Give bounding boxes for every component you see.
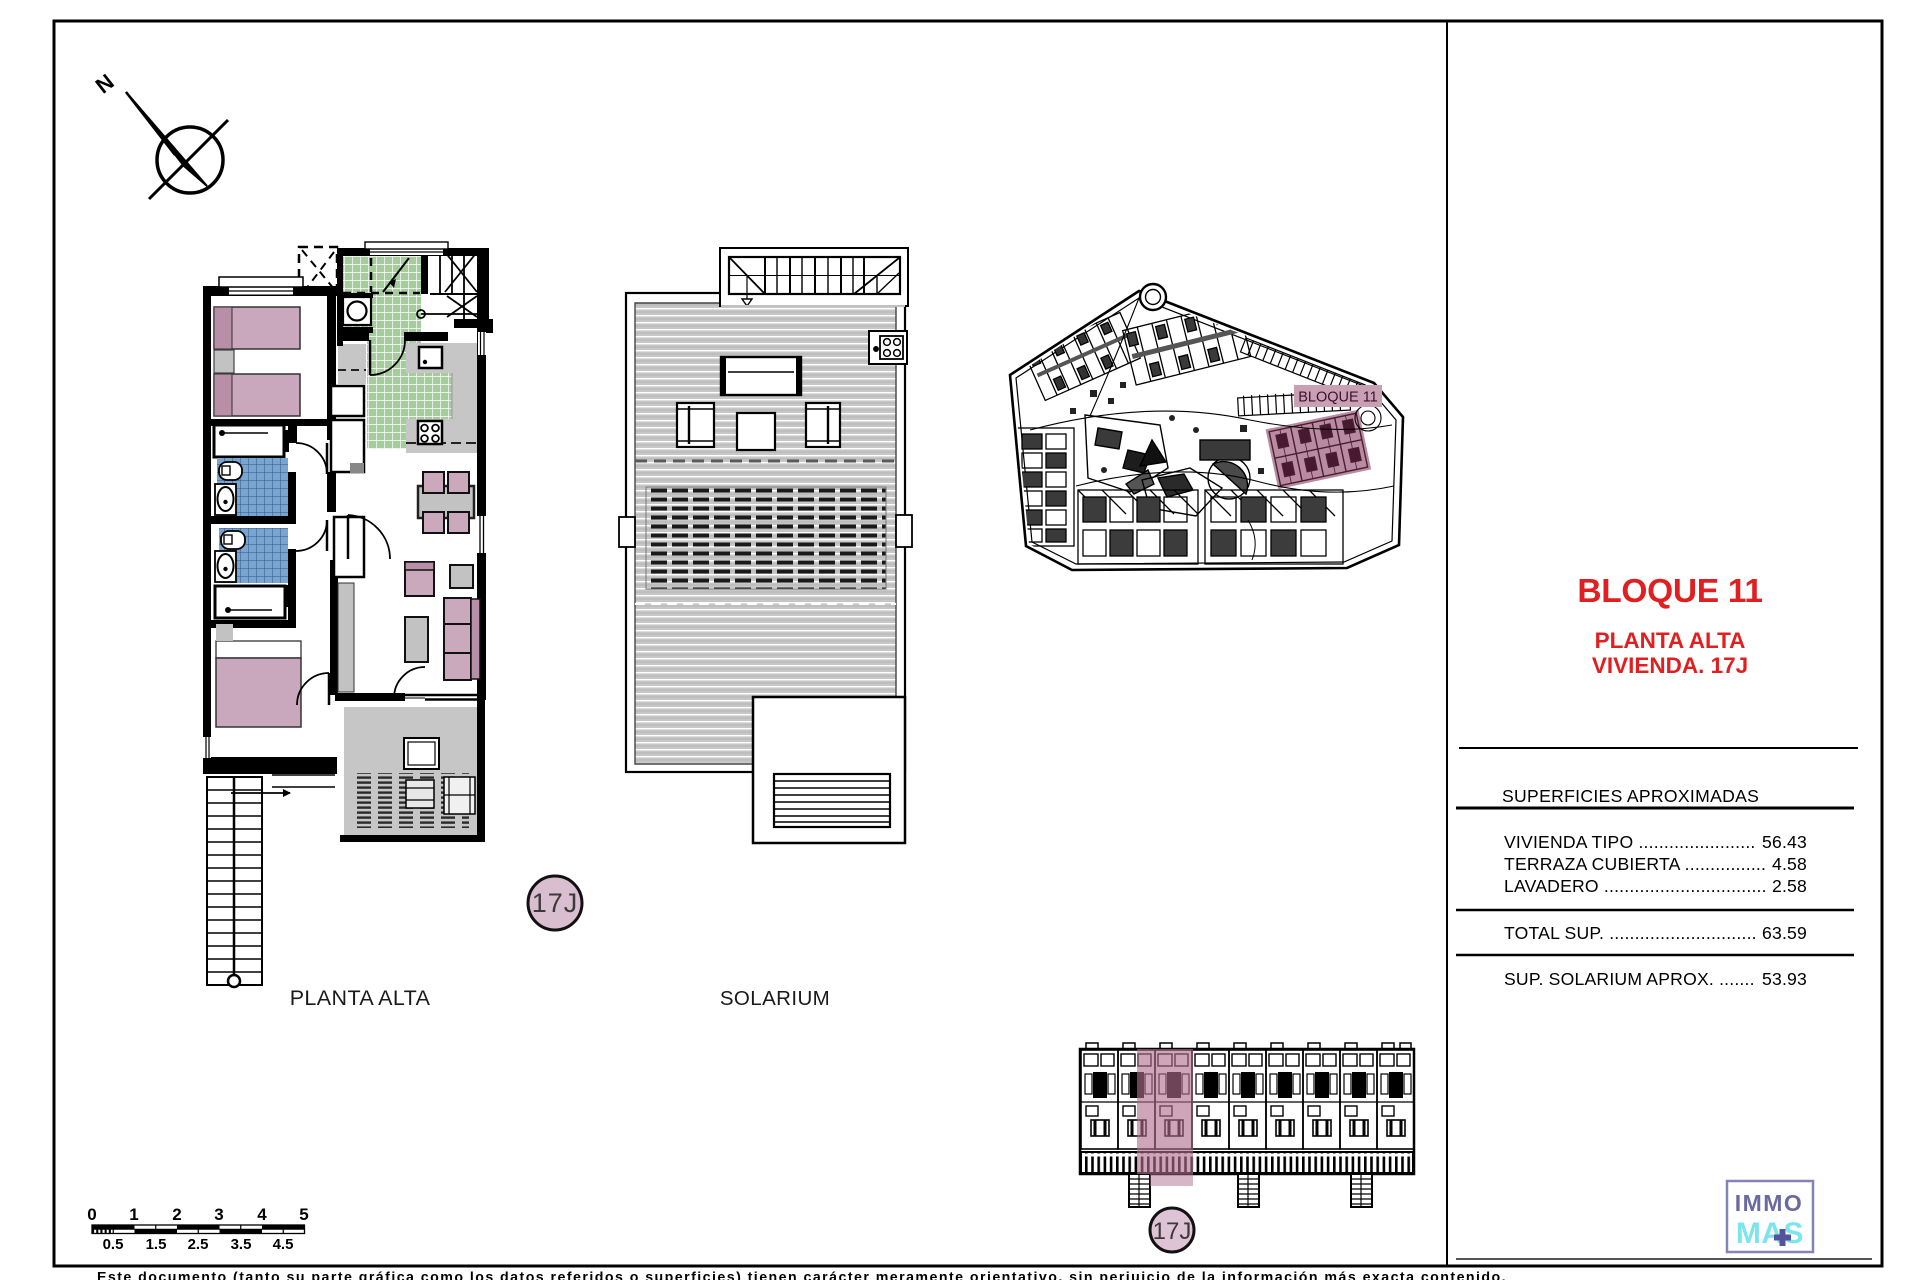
svg-text:PLANTA ALTA: PLANTA ALTA	[290, 986, 431, 1010]
svg-text:SOLARIUM: SOLARIUM	[720, 987, 830, 1010]
svg-text:SUP. SOLARIUM APROX. .......: SUP. SOLARIUM APROX. .......	[1504, 969, 1755, 989]
svg-text:TERRAZA CUBIERTA .............: TERRAZA CUBIERTA ................	[1504, 854, 1766, 874]
svg-text:0.5: 0.5	[103, 1236, 124, 1253]
svg-text:VIVIENDA TIPO ................: VIVIENDA TIPO .......................	[1504, 832, 1756, 852]
svg-text:5: 5	[299, 1205, 308, 1224]
svg-text:TOTAL SUP. ..................: TOTAL SUP. .............................	[1504, 923, 1757, 943]
svg-text:LAVADERO .....................: LAVADERO ...............................…	[1504, 876, 1767, 896]
svg-text:17J: 17J	[1153, 1218, 1192, 1245]
svg-text:4.58: 4.58	[1772, 854, 1807, 874]
svg-text:3.5: 3.5	[231, 1236, 252, 1253]
svg-text:PLANTA ALTA: PLANTA ALTA	[1595, 628, 1746, 653]
svg-text:2: 2	[172, 1205, 181, 1224]
svg-text:4: 4	[257, 1205, 267, 1224]
svg-text:4.5: 4.5	[273, 1236, 294, 1253]
svg-text:2.5: 2.5	[188, 1236, 209, 1253]
svg-text:MAS: MAS	[1736, 1217, 1804, 1250]
svg-text:Este documento (tanto su parte: Este documento (tanto su parte gráfica c…	[97, 1270, 1507, 1280]
svg-text:SUPERFICIES APROXIMADAS: SUPERFICIES APROXIMADAS	[1502, 786, 1759, 806]
svg-text:VIVIENDA. 17J: VIVIENDA. 17J	[1592, 653, 1748, 678]
svg-text:3: 3	[214, 1205, 223, 1224]
svg-text:0: 0	[87, 1205, 96, 1224]
svg-text:56.43: 56.43	[1762, 832, 1807, 852]
svg-text:IMMO: IMMO	[1735, 1190, 1804, 1216]
svg-text:BLOQUE 11: BLOQUE 11	[1298, 390, 1378, 406]
svg-text:2.58: 2.58	[1772, 876, 1807, 896]
svg-text:1.5: 1.5	[146, 1236, 167, 1253]
svg-text:63.59: 63.59	[1762, 923, 1807, 943]
svg-text:17J: 17J	[532, 888, 579, 918]
svg-text:BLOQUE 11: BLOQUE 11	[1577, 573, 1762, 610]
svg-text:53.93: 53.93	[1762, 969, 1807, 989]
svg-text:1: 1	[129, 1205, 138, 1224]
